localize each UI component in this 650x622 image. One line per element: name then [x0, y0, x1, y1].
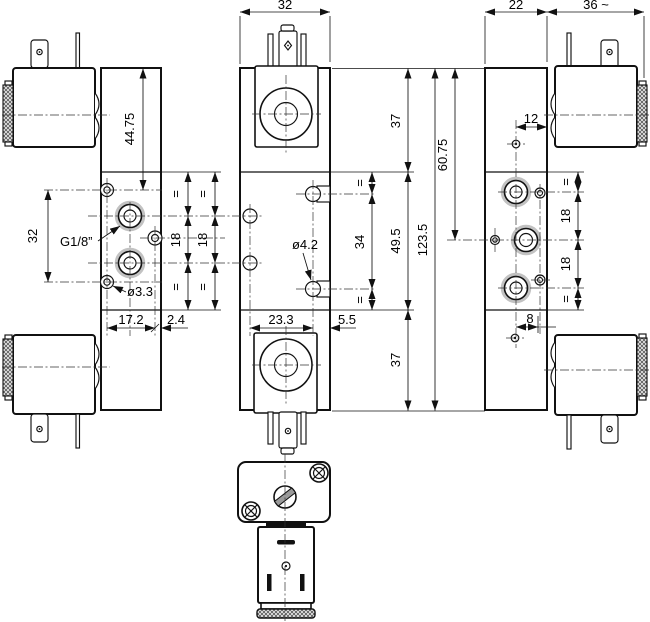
solenoid-coil	[13, 335, 95, 414]
connector-pin	[301, 34, 306, 68]
dim-front-total-height: 123.5	[415, 224, 430, 257]
dim-equal: =	[352, 179, 367, 187]
dim-right-solenoid-length: 36 ~	[583, 0, 609, 12]
connector-slot-right	[300, 574, 305, 591]
connector-slot-horizontal	[277, 540, 295, 545]
dim-left-port-pitch: 18	[168, 233, 183, 247]
dim-left-height-to-port: 44.75	[122, 113, 137, 146]
gland-base	[261, 603, 311, 609]
connector-pin	[76, 33, 80, 68]
dim-right-height-to-mid-port: 60.75	[435, 139, 450, 172]
dim-right-depth: 22	[509, 0, 523, 12]
dim-equal: =	[558, 178, 573, 186]
connector-pin	[268, 412, 273, 444]
dim-equal: =	[168, 283, 183, 291]
dim-front-body-mid: 49.5	[388, 228, 403, 253]
dim-equal: =	[168, 190, 183, 198]
connector-pin	[567, 415, 571, 449]
connector-pin	[301, 412, 306, 444]
connector-slot-left	[267, 574, 272, 591]
tab-cap	[281, 448, 294, 454]
connector-tab	[601, 40, 618, 68]
dim-left-depth-edge: 2.4	[167, 312, 185, 327]
dim-right-hole-to-edge: 12	[524, 111, 538, 126]
connector-pin	[567, 33, 571, 68]
dim-left-port-pitch: 18	[195, 233, 210, 247]
dim-equal: =	[558, 295, 573, 303]
connector-tab	[279, 412, 297, 448]
label-port-thread: G1/8”	[60, 234, 93, 249]
dim-right-hole-offset-x: 8	[526, 311, 533, 326]
dim-right-port-pitch: 18	[558, 257, 573, 271]
cable-gland-knurl	[257, 609, 315, 618]
dim-front-hole-span-x: 23.3	[268, 312, 293, 327]
dim-equal: =	[195, 283, 210, 291]
tab-cap	[281, 25, 294, 31]
label-mount-hole-dia: ø3.3	[127, 284, 153, 299]
dim-front-tab-hole-span: 34	[352, 235, 367, 249]
manual-override-knurl	[637, 338, 647, 396]
solenoid-coil	[555, 66, 637, 147]
dim-equal: =	[352, 296, 367, 304]
solenoid-coil	[555, 335, 637, 415]
dim-equal: =	[195, 190, 210, 198]
label-tab-hole-dia: ø4.2	[292, 237, 318, 252]
connector-pin	[76, 414, 80, 448]
dim-front-solenoid-bottom: 37	[388, 353, 403, 367]
connector-tab	[31, 40, 48, 68]
dim-left-depth-port-face: 17.2	[118, 312, 143, 327]
dim-front-tab-offset-x: 5.5	[338, 312, 356, 327]
manual-override-knurl	[3, 339, 13, 396]
dim-front-width: 32	[278, 0, 292, 12]
engineering-drawing: 44.75 32 G1/8” ø3.3 17.2 2.4 = 18 = = 18	[0, 0, 650, 622]
dim-front-solenoid-top: 37	[388, 114, 403, 128]
manual-override-knurl	[3, 85, 13, 142]
connector-pin	[268, 34, 273, 68]
dim-left-mount-hole-span: 32	[25, 229, 40, 243]
connector-tab	[31, 414, 48, 442]
solenoid-coil	[13, 68, 95, 147]
drawing-canvas: 44.75 32 G1/8” ø3.3 17.2 2.4 = 18 = = 18	[0, 0, 650, 622]
manual-override-knurl	[637, 85, 647, 142]
dim-right-port-pitch: 18	[558, 209, 573, 223]
